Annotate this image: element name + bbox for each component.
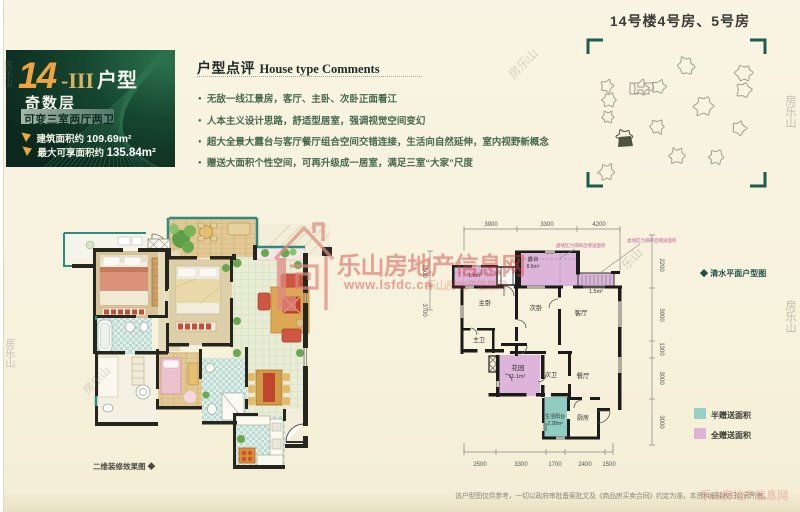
svg-text:1700: 1700 [548, 462, 562, 468]
svg-text:虚线区为隔断后赠送面积: 虚线区为隔断后赠送面积 [556, 242, 606, 249]
svg-text:3300: 3300 [540, 222, 554, 228]
svg-text:主卧: 主卧 [479, 298, 493, 307]
svg-text:2.28m²: 2.28m² [547, 421, 563, 427]
svg-text:2200: 2200 [658, 258, 664, 272]
svg-text:2400: 2400 [578, 462, 592, 468]
svg-text:3700: 3700 [421, 303, 427, 317]
svg-text:3300: 3300 [514, 462, 528, 468]
svg-text:生活阳台: 生活阳台 [545, 413, 565, 420]
svg-text:次卧: 次卧 [530, 303, 544, 312]
svg-text:11.1m²: 11.1m² [509, 374, 526, 380]
svg-text:3000: 3000 [658, 371, 664, 385]
svg-text:8.6m²: 8.6m² [527, 264, 540, 270]
svg-text:3000: 3000 [658, 415, 664, 429]
svg-text:露台: 露台 [527, 255, 539, 263]
svg-text:客厅: 客厅 [575, 308, 589, 317]
svg-text:2500: 2500 [473, 462, 487, 468]
svg-text:1500: 1500 [602, 462, 616, 468]
svg-text:次卫: 次卫 [545, 371, 557, 379]
svg-text:4200: 4200 [592, 222, 606, 228]
svg-text:主卫: 主卫 [473, 336, 485, 344]
svg-text:1300: 1300 [658, 342, 664, 356]
svg-text:厨房: 厨房 [577, 414, 589, 422]
svg-text:花园: 花园 [512, 363, 525, 372]
svg-text:1.5m²: 1.5m² [589, 289, 603, 295]
svg-text:3900: 3900 [484, 222, 498, 228]
svg-text:3900: 3900 [658, 308, 664, 322]
svg-text:餐厅: 餐厅 [577, 371, 591, 380]
